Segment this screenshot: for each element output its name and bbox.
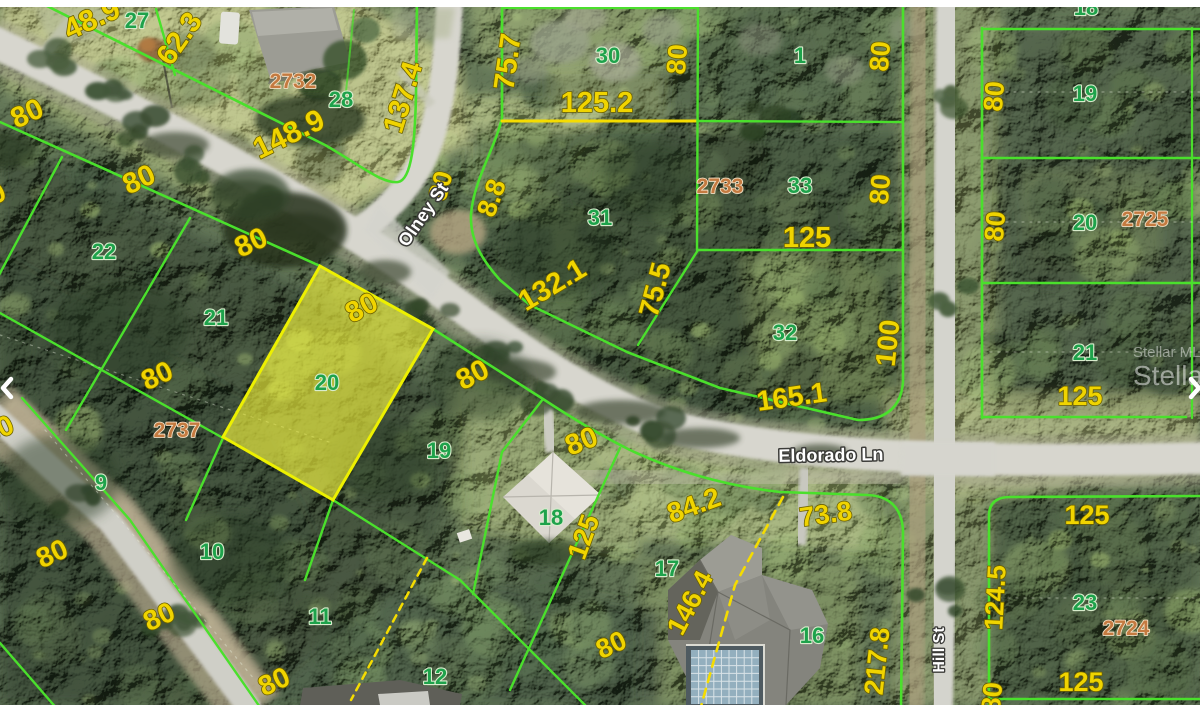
svg-text:Stellar MLS: Stellar MLS xyxy=(1133,344,1200,361)
svg-text:100: 100 xyxy=(870,318,906,368)
svg-text:18: 18 xyxy=(539,505,563,530)
svg-text:12: 12 xyxy=(423,664,447,689)
svg-text:17: 17 xyxy=(655,556,679,581)
svg-text:9: 9 xyxy=(95,470,107,495)
svg-text:125: 125 xyxy=(783,222,831,254)
svg-text:33: 33 xyxy=(788,173,812,198)
svg-text:31: 31 xyxy=(588,205,612,230)
svg-text:125: 125 xyxy=(1057,381,1102,411)
svg-text:20: 20 xyxy=(1073,210,1097,235)
svg-text:27: 27 xyxy=(125,8,149,33)
svg-text:80: 80 xyxy=(979,210,1012,243)
svg-text:Eldorado Ln: Eldorado Ln xyxy=(778,444,883,466)
svg-text:2732: 2732 xyxy=(270,70,317,93)
svg-text:80: 80 xyxy=(864,173,897,206)
svg-text:80: 80 xyxy=(661,43,694,76)
svg-text:23: 23 xyxy=(1073,590,1097,615)
svg-text:Hill St: Hill St xyxy=(931,627,948,673)
svg-text:32: 32 xyxy=(773,320,797,345)
svg-text:11: 11 xyxy=(308,604,331,629)
svg-text:22: 22 xyxy=(92,239,116,264)
svg-text:19: 19 xyxy=(427,438,451,463)
svg-text:80: 80 xyxy=(978,80,1011,113)
svg-text:80: 80 xyxy=(864,40,897,73)
svg-text:21: 21 xyxy=(1073,340,1097,365)
svg-text:80: 80 xyxy=(976,681,1009,705)
svg-text:20: 20 xyxy=(315,370,339,395)
svg-text:124.5: 124.5 xyxy=(978,564,1011,631)
svg-text:16: 16 xyxy=(800,623,824,648)
svg-text:30: 30 xyxy=(596,43,620,68)
svg-text:28: 28 xyxy=(329,87,353,112)
svg-text:125: 125 xyxy=(1064,500,1109,530)
svg-text:19: 19 xyxy=(1073,81,1097,106)
svg-text:1: 1 xyxy=(794,43,806,68)
svg-text:2737: 2737 xyxy=(154,419,201,442)
svg-text:21: 21 xyxy=(204,305,228,330)
svg-text:2733: 2733 xyxy=(697,175,744,198)
svg-text:2725: 2725 xyxy=(1122,208,1169,231)
svg-text:125: 125 xyxy=(1058,667,1103,697)
svg-text:10: 10 xyxy=(200,539,224,564)
svg-text:Stellar MLS: Stellar MLS xyxy=(1133,360,1200,391)
svg-text:2724: 2724 xyxy=(1103,617,1150,640)
svg-text:125.2: 125.2 xyxy=(561,87,634,119)
